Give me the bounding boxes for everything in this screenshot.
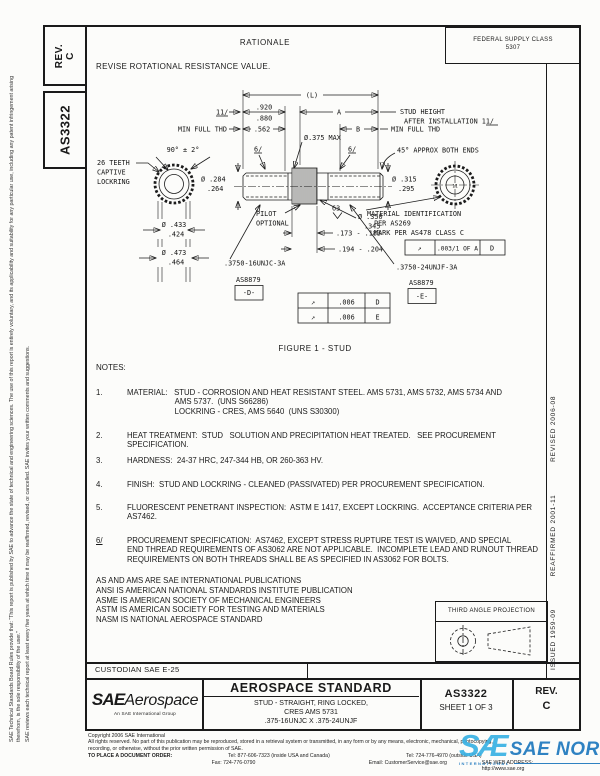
sae-aerospace-logo: SAEAerospace An SAE International Group [88,690,202,716]
title-block-sheet: SHEET 1 OF 3 [420,703,512,712]
svg-text:6/: 6/ [254,146,262,154]
dim-overall-length: (L) [243,90,378,100]
flag-6-right: 6/ [340,146,356,170]
revision-history-dates: ISSUED 1959-09 REAFFIRMED 2001-11 REVISE… [550,110,557,670]
logo-tagline: An SAE International Group [88,711,202,716]
angle-90-label: 90° ± 2° [167,146,200,154]
dim-B-min-thread: B MIN FULL THD [340,125,440,134]
fcf-r1-value: .006 [338,299,354,307]
left-margin-disclaimer-2: SAE reviews each technical report at lea… [25,66,32,742]
dim-433-424: Ø .433 .424 [143,219,205,239]
logo-sae-text: SAE [92,690,125,709]
note-2-text: HEAT TREATMENT: STUD SOLUTION AND PRECIP… [127,431,547,450]
tel-inside: Tel: 877-606-7323 (inside USA and Canada… [228,753,406,759]
note-3-number: 3. [96,456,103,465]
watermark-line [514,763,600,765]
title-block-subtitle: STUD - STRAIGHT, RING LOCKED, CRES AMS 5… [202,699,420,726]
fcf-r2-value: .006 [338,314,354,322]
logo-aerospace-text: Aerospace [124,692,198,709]
chamfer-note: 45° APPROX BOTH ENDS [382,147,479,170]
as8879-left-label: AS8879 [236,276,261,284]
flag-11-label: 11/ [216,109,228,117]
note-1-number: 1. [96,388,103,397]
sidebar-rev-value: C [65,52,76,60]
dim-562-label: .562 [254,126,270,134]
federal-supply-class-box: FEDERAL SUPPLY CLASS 5307 [445,27,581,64]
publication-line: NASM IS NATIONAL AEROSPACE STANDARD [96,615,353,625]
dia-315-label: Ø .315 [392,176,417,184]
fcf-table: ↗ .006 D ↗ .006 E [298,293,390,323]
fcf-main-value: .003/1 OF A [437,246,478,253]
third-angle-projection-box: THIRD ANGLE PROJECTION [435,601,548,662]
projection-symbol-icon [436,622,546,660]
teeth-note-3: LOCKRING [97,178,130,186]
material-id-note: MATERIAL IDENTIFICATION PER AS269 MARK P… [366,197,464,237]
note-2-number: 2. [96,431,103,440]
dia-295-label: .295 [398,185,414,193]
title-block-rev-label: REV. [512,686,581,697]
dim-L-label: (L) [306,92,318,100]
dim-562-min-thread: MIN FULL THD .562 [178,125,285,134]
sidebar-rev-label: REV. [54,43,65,67]
note-1-text: MATERIAL: STUD - CORROSION AND HEAT RESI… [127,388,547,416]
dim-920-label: .920 [256,104,272,112]
title-block-rev-value: C [512,700,581,712]
thread-right-label: .3750-24UNJF-3A [396,264,457,272]
left-margin-disclaimer-1: SAE Technical Standards Board Rules prov… [9,66,22,742]
issued-date: ISSUED 1959-09 [550,609,557,670]
stud-drawing: (L) .920 .880 11/ A STUD HEIGHT AFTER IN… [88,85,548,343]
sae-norm-watermark: SÆ SAE NORM INTERNATIONAL [459,731,600,766]
notes-heading: NOTES: [96,363,126,372]
document-page: SAE Technical Standards Board Rules prov… [0,0,600,776]
projection-title: THIRD ANGLE PROJECTION [436,602,547,622]
min-full-thd-right-label: MIN FULL THD [391,126,440,134]
dim-473-464: Ø .473 .464 [139,247,209,267]
fcf-main: ↗ .003/1 OF A D [405,240,505,255]
note-4-text: FINISH: STUD AND LOCKRING - CLEANED (PAS… [127,480,547,489]
dim-284-264: Ø .284 .264 [201,163,238,210]
note-3-text: HARDNESS: 24-37 HRC, 247-344 HB, OR 260-… [127,456,547,465]
datum-d-label: -D- [243,289,255,297]
chamfer-45-label: 45° APPROX BOTH ENDS [397,147,479,155]
end-view-mark: 11 [452,184,458,190]
dim-B-label: B [356,126,360,134]
dim-315-295: Ø .315 .295 [388,163,417,210]
stud-height-note-1: STUD HEIGHT [400,108,445,116]
revised-date: REVISED 2006-08 [550,396,557,462]
publication-line: ANSI IS AMERICAN NATIONAL STANDARDS INST… [96,586,353,596]
dia-433-label: Ø .433 [162,221,187,229]
order-label: TO PLACE A DOCUMENT ORDER: [88,753,228,759]
custodian-row-top-line [85,662,581,664]
publication-line: ASTM IS AMERICAN SOCIETY FOR TESTING AND… [96,605,353,615]
pilot-label-1: PILOT [256,210,276,218]
min-full-thd-left-label: MIN FULL THD [178,126,227,134]
title-underline [204,696,419,697]
note-6-text: PROCUREMENT SPECIFICATION: AS7462, EXCEP… [127,536,547,564]
fsc-label: FEDERAL SUPPLY CLASS [446,36,580,44]
material-id-2: PER AS269 [374,220,411,228]
stud-end-view: 11 [431,161,479,209]
fcf-r1-datum: D [375,299,379,307]
dim-880-label: .880 [256,115,272,123]
sidebar-number-box: AS3322 [43,91,87,169]
rationale-text: REVISE ROTATIONAL RESISTANCE VALUE. [96,62,271,71]
note-4-number: 4. [96,480,103,489]
thread-left-label: .3750-16UNJC-3A [224,260,285,268]
pilot-note: PILOT OPTIONAL [256,205,300,228]
pilot-label-2: OPTIONAL [256,220,289,228]
watermark-sae-icon: SÆ [459,731,507,761]
dia-375-max-label: Ø.375 MAX [304,134,342,142]
stud-side-view [234,168,392,204]
dia-464-label: .464 [168,259,184,267]
reaffirmed-date: REAFFIRMED 2001-11 [550,495,557,577]
title-block-top-line [85,678,581,680]
teeth-note-1: 26 TEETH [97,159,130,167]
fcf-r1-symbol: ↗ [311,299,315,307]
dia-424-label: .424 [168,231,184,239]
subtitle-line-3: .375-16UNJC X .375-24UNJF [202,717,420,726]
subtitle-line-1: STUD - STRAIGHT, RING LOCKED, [202,699,420,708]
fcf-r2-symbol: ↗ [311,314,315,322]
note-5-number: 5. [96,503,103,512]
rationale-heading: RATIONALE [85,38,445,47]
publication-line: AS AND AMS ARE SAE INTERNATIONAL PUBLICA… [96,576,353,586]
dia-264-label: .264 [207,185,223,193]
dia-284-label: Ø .284 [201,176,226,184]
finish-63-label: 63 [332,205,340,213]
fsc-value: 5307 [446,44,580,52]
teeth-note-2: CAPTIVE [97,169,126,177]
dia-473-label: Ø .473 [162,249,187,257]
title-block-title: AEROSPACE STANDARD [202,681,420,695]
title-block-doc-number: AS3322 [420,688,512,700]
fcf-main-datum: D [490,245,494,253]
custodian-label: CUSTODIAN SAE E-25 [95,665,179,674]
teeth-note: 26 TEETH CAPTIVE LOCKRING [97,159,159,186]
flag-6-left: 6/ [254,146,265,170]
publications-list: AS AND AMS ARE SAE INTERNATIONAL PUBLICA… [96,576,353,625]
dim-194-label: .194 - .204 [338,246,383,254]
watermark-tagline: INTERNATIONAL [459,761,510,766]
custodian-cell-divider [307,662,308,678]
dim-A-stud-height: A STUD HEIGHT AFTER INSTALLATION 11/ [300,107,498,126]
fcf-main-symbol: ↗ [417,245,421,253]
sidebar-doc-number: AS3322 [58,105,73,155]
dim-A-label: A [337,109,341,117]
stud-height-note-2: AFTER INSTALLATION 11/ [404,118,494,126]
datum-e-label: -E- [416,293,428,301]
svg-text:6/: 6/ [348,146,356,154]
figure-caption: FIGURE 1 - STUD [85,344,545,353]
fax-number: Fax: 724-776-0790 [212,760,369,773]
material-id-1: MATERIAL IDENTIFICATION [367,210,461,218]
sidebar-rev-box: REV.C [43,25,87,86]
as8879-right-label: AS8879 [409,279,434,287]
watermark-text: SAE NORM [510,739,600,761]
subtitle-line-2: CRES AMS 5731 [202,708,420,717]
dim-375-max: Ø.375 MAX [294,134,342,168]
publication-line: ASME IS AMERICAN SOCIETY OF MECHANICAL E… [96,596,353,606]
dim-920-880: .920 .880 11/ [216,104,285,123]
note-5-text: FLUORESCENT PENETRANT INSPECTION: ASTM E… [127,503,547,522]
material-id-3: MARK PER AS478 CLASS C [374,229,464,237]
fcf-r2-datum: E [375,314,379,322]
note-6-number: 6/ [96,536,103,545]
